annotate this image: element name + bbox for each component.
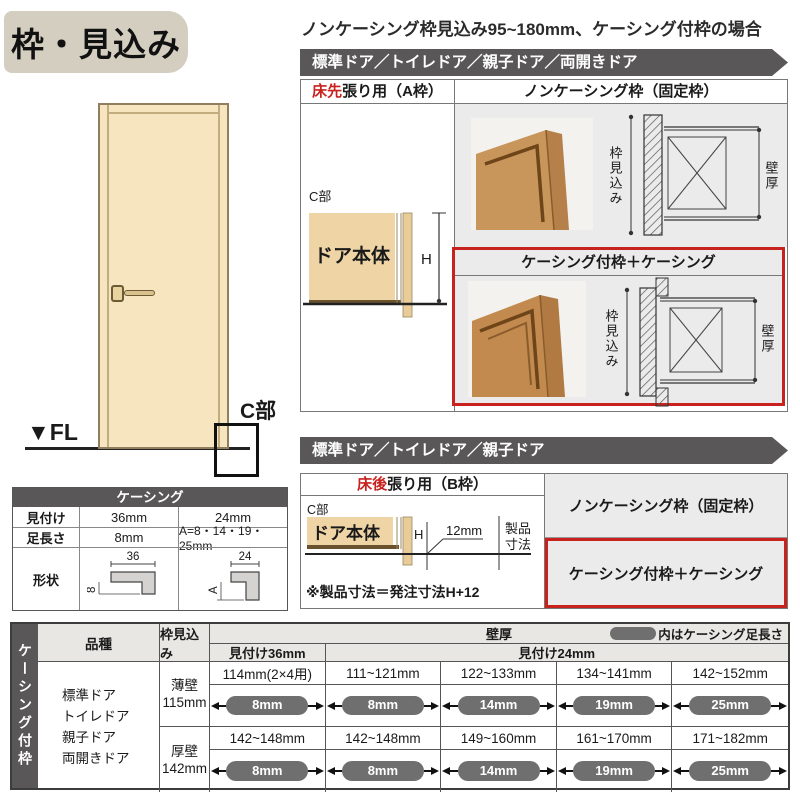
dim-line	[219, 705, 226, 707]
range-cell: 149~160mm	[441, 727, 557, 750]
dim-line	[450, 770, 457, 772]
page-title: 枠・見込み	[4, 11, 188, 73]
noncasing-panel: 枠見込み	[455, 104, 787, 247]
row-label-mitsuke: 見付け	[13, 507, 79, 527]
casing-foot-pill: 25mm	[689, 696, 771, 716]
dim-line	[335, 770, 342, 772]
thick-wall-depth: 142mm	[162, 760, 207, 777]
kind-standard: 標準ドア	[62, 685, 159, 706]
dim-line	[450, 705, 457, 707]
casing-table-title: ケーシング	[13, 488, 287, 507]
header-wall-thickness: 壁厚 内はケーシング足長さ	[210, 624, 788, 644]
wall-thickness-dim-label: 壁厚	[759, 274, 775, 404]
arrow-right-icon	[431, 702, 439, 710]
dim-line	[681, 705, 689, 707]
arrow-left-icon	[442, 767, 450, 775]
pill-cell: 14mm	[441, 685, 557, 727]
arrow-right-icon	[662, 702, 670, 710]
header-mitsuke-24: 見付け24mm	[326, 644, 788, 662]
door-types-band-a: 標準ドア／トイレドア／親子ドア／両開きドア	[300, 49, 788, 76]
frame-b-section-cell: C部 ドア本体 H 12mm 製品 寸法 ※製品寸法＝発注寸法H+12	[301, 496, 545, 608]
product-dim-label-1: 製品	[505, 521, 531, 536]
arrow-left-icon	[211, 702, 219, 710]
range-cell: 171~182mm	[672, 727, 788, 750]
casing-foot-pill: 19mm	[573, 696, 655, 716]
arrow-right-icon	[779, 767, 787, 775]
frame-b-left-header: 床後張り用（B枠）	[301, 474, 545, 496]
arrow-right-icon	[662, 767, 670, 775]
frame-b-table: 床後張り用（B枠） C部 ドア本体 H 12mm 製品 寸法 ※製品	[300, 473, 788, 609]
dim-line	[540, 770, 547, 772]
frame-a-section-diagram: C部 H ドア本体	[301, 104, 453, 412]
spec-table-side-header: ケーシング付枠	[12, 624, 38, 788]
range-cell: 161~170mm	[557, 727, 673, 750]
floor-level-label: ▼FL	[27, 419, 78, 446]
c-part-label: C部	[309, 189, 331, 204]
shape-24-width-label: 24	[239, 551, 252, 563]
pill-cell: 19mm	[557, 750, 673, 792]
product-dim-label-2: 寸法	[505, 537, 531, 552]
dim-line	[566, 770, 573, 772]
dim-line	[424, 705, 431, 707]
c-section-marker	[214, 423, 259, 477]
frame-a-table: 床先張り用（A枠） ノンケーシング枠（固定枠） C部 H ドア本体	[300, 79, 788, 412]
dim-line	[335, 705, 342, 707]
header-kind: 品種	[38, 624, 160, 662]
shape-36-width-label: 36	[127, 551, 140, 563]
dim-line	[308, 770, 315, 772]
thin-wall-label: 薄壁	[171, 677, 198, 694]
frame-depth-dim-label: 枠見込み	[603, 274, 619, 404]
casing-panel: ケーシング付枠＋ケーシング 枠見込み	[452, 247, 785, 406]
dim-line	[219, 770, 226, 772]
casing-foot-pill: 19mm	[573, 761, 655, 781]
casing-foot-pill: 8mm	[226, 696, 308, 716]
arrow-left-icon	[442, 702, 450, 710]
foot-8mm: 8mm	[79, 527, 178, 547]
shape-36-foot-label: 8	[87, 587, 98, 593]
dim-line	[540, 705, 547, 707]
range-cell: 111~121mm	[326, 662, 442, 685]
pill-cell: 8mm	[326, 750, 442, 792]
dim-line	[424, 770, 431, 772]
frame-b-header-rest: 張り用（B枠）	[387, 476, 488, 493]
casing-frame-spec-table: ケーシング付枠 品種 枠見込み 壁厚 内はケーシング足長さ 見付け36mm 見付…	[10, 622, 790, 790]
arrow-right-icon	[316, 767, 324, 775]
dim-line	[308, 705, 315, 707]
arrow-left-icon	[327, 767, 335, 775]
thick-wall-label: 厚壁	[171, 743, 198, 760]
range-cell: 142~148mm	[210, 727, 326, 750]
arrow-left-icon	[673, 702, 681, 710]
arrow-right-icon	[547, 702, 555, 710]
thin-wall-depth: 115mm	[162, 694, 206, 711]
h-dimension-label: H	[414, 527, 423, 542]
casing-foot-pill: 14mm	[458, 761, 540, 781]
arrow-left-icon	[558, 702, 566, 710]
c-section-label: C部	[240, 395, 276, 425]
frame-b-header-red: 床後	[357, 476, 387, 493]
frame-b-noncasing-cell: ノンケーシング枠（固定枠）	[545, 474, 787, 538]
header-mitsuke-36: 見付け36mm	[210, 644, 326, 662]
noncasing-section-drawing	[623, 109, 763, 241]
kind-double: 両開きドア	[62, 748, 159, 769]
arrow-left-icon	[327, 702, 335, 710]
kind-parent-child: 親子ドア	[62, 727, 159, 748]
shape-24-foot-label: A	[208, 586, 220, 594]
product-dimension-note: ※製品寸法＝発注寸法H+12	[306, 582, 479, 602]
dim-line	[681, 770, 689, 772]
noncasing-door-photo	[471, 118, 593, 230]
casing-section-figure: 枠見込み	[603, 274, 779, 404]
casing-section-drawing	[619, 274, 759, 410]
casing-door-photo	[468, 281, 586, 397]
casing-foot-pill: 8mm	[342, 696, 424, 716]
foot-a-values: A=8・14・19・25mm	[178, 527, 287, 547]
intro-text: ノンケーシング枠見込み95~180mm、ケーシング付枠の場合	[301, 15, 762, 40]
range-cell: 142~152mm	[672, 662, 788, 685]
frame-b-section-diagram: ドア本体 H 12mm 製品 寸法	[303, 510, 543, 580]
dim-line	[771, 770, 779, 772]
depth-thin-wall-cell: 薄壁 115mm	[160, 662, 210, 727]
casing-foot-pill: 8mm	[342, 761, 424, 781]
pill-legend-text: 内はケーシング足長さ	[658, 624, 783, 643]
pill-legend-icon	[610, 627, 656, 640]
depth-thick-wall-cell: 厚壁 142mm	[160, 727, 210, 792]
casing-shape-24: 24 A	[178, 547, 287, 610]
noncasing-section-figure: 枠見込み	[607, 109, 783, 243]
casing-foot-pill: 8mm	[226, 761, 308, 781]
arrow-left-icon	[211, 767, 219, 775]
pill-cell: 25mm	[672, 750, 788, 792]
door-frame-line-left	[107, 105, 109, 447]
door-frame-line-top	[107, 112, 220, 114]
row-label-ashinagasa: 足長さ	[13, 527, 79, 547]
frame-a-header-rest: 張り用（A枠）	[342, 83, 443, 100]
door-elevation-figure: ▼FL C部	[0, 95, 296, 487]
casing-dimension-table: ケーシング 見付け 36mm 24mm 足長さ 8mm A=8・14・19・25…	[12, 487, 288, 611]
pill-cell: 8mm	[210, 685, 326, 727]
range-cell: 142~148mm	[326, 727, 442, 750]
row-label-keijou: 形状	[13, 547, 79, 610]
header-frame-depth: 枠見込み	[160, 624, 210, 662]
pill-legend: 内はケーシング足長さ	[610, 624, 783, 643]
frame-b-casing-cell: ケーシング付枠＋ケーシング	[545, 538, 787, 608]
h-dimension-label: H	[421, 251, 432, 268]
casing-shape-36: 36 8	[79, 547, 178, 610]
frame-a-section-cell: C部 H ドア本体	[301, 104, 455, 411]
wall-thickness-dim-label: 壁厚	[763, 109, 779, 243]
range-cell: 122~133mm	[441, 662, 557, 685]
door-frame-line-right	[218, 105, 220, 447]
band-b-label: 標準ドア／トイレドア／親子ドア	[312, 442, 545, 459]
arrow-left-icon	[673, 767, 681, 775]
door-body-label: ドア本体	[314, 244, 391, 267]
mitsuke-36: 36mm	[79, 507, 178, 527]
dim-line	[655, 770, 662, 772]
door-kind-cell: 標準ドア トイレドア 親子ドア 両開きドア	[38, 662, 160, 792]
door-handle-lever-icon	[124, 290, 155, 296]
range-cell: 114mm(2×4用)	[210, 662, 326, 685]
arrow-right-icon	[316, 702, 324, 710]
door-types-band-b: 標準ドア／トイレドア／親子ドア	[300, 437, 788, 464]
arrow-left-icon	[558, 767, 566, 775]
noncasing-header: ノンケーシング枠（固定枠）	[455, 80, 787, 104]
arrow-right-icon	[779, 702, 787, 710]
pill-cell: 19mm	[557, 685, 673, 727]
wall-thickness-text: 壁厚	[486, 624, 512, 643]
pill-cell: 8mm	[210, 750, 326, 792]
door-panel	[98, 103, 229, 449]
casing-foot-pill: 25mm	[689, 761, 771, 781]
casing-foot-pill: 14mm	[458, 696, 540, 716]
pill-cell: 14mm	[441, 750, 557, 792]
kind-toilet: トイレドア	[62, 706, 159, 727]
dim-12mm-label: 12mm	[446, 523, 482, 538]
spec-side-label: ケーシング付枠	[15, 643, 35, 769]
dim-line	[771, 705, 779, 707]
pill-cell: 25mm	[672, 685, 788, 727]
catalog-page: 枠・見込み ノンケーシング枠見込み95~180mm、ケーシング付枠の場合 標準ド…	[0, 0, 800, 800]
frame-a-left-header: 床先張り用（A枠）	[301, 80, 455, 104]
range-cell: 134~141mm	[557, 662, 673, 685]
door-handle-plate	[111, 285, 124, 302]
band-a-label: 標準ドア／トイレドア／親子ドア／両開きドア	[312, 54, 638, 71]
dim-line	[655, 705, 662, 707]
frame-a-header-red: 床先	[312, 83, 342, 100]
dim-line	[566, 705, 573, 707]
door-body-label: ドア本体	[312, 523, 381, 543]
pill-cell: 8mm	[326, 685, 442, 727]
arrow-right-icon	[547, 767, 555, 775]
frame-depth-dim-label: 枠見込み	[607, 109, 623, 243]
shape-24-drawing: 24 A	[191, 550, 275, 608]
casing-header: ケーシング付枠＋ケーシング	[455, 250, 782, 276]
shape-36-drawing: 36 8	[87, 550, 171, 608]
arrow-right-icon	[431, 767, 439, 775]
